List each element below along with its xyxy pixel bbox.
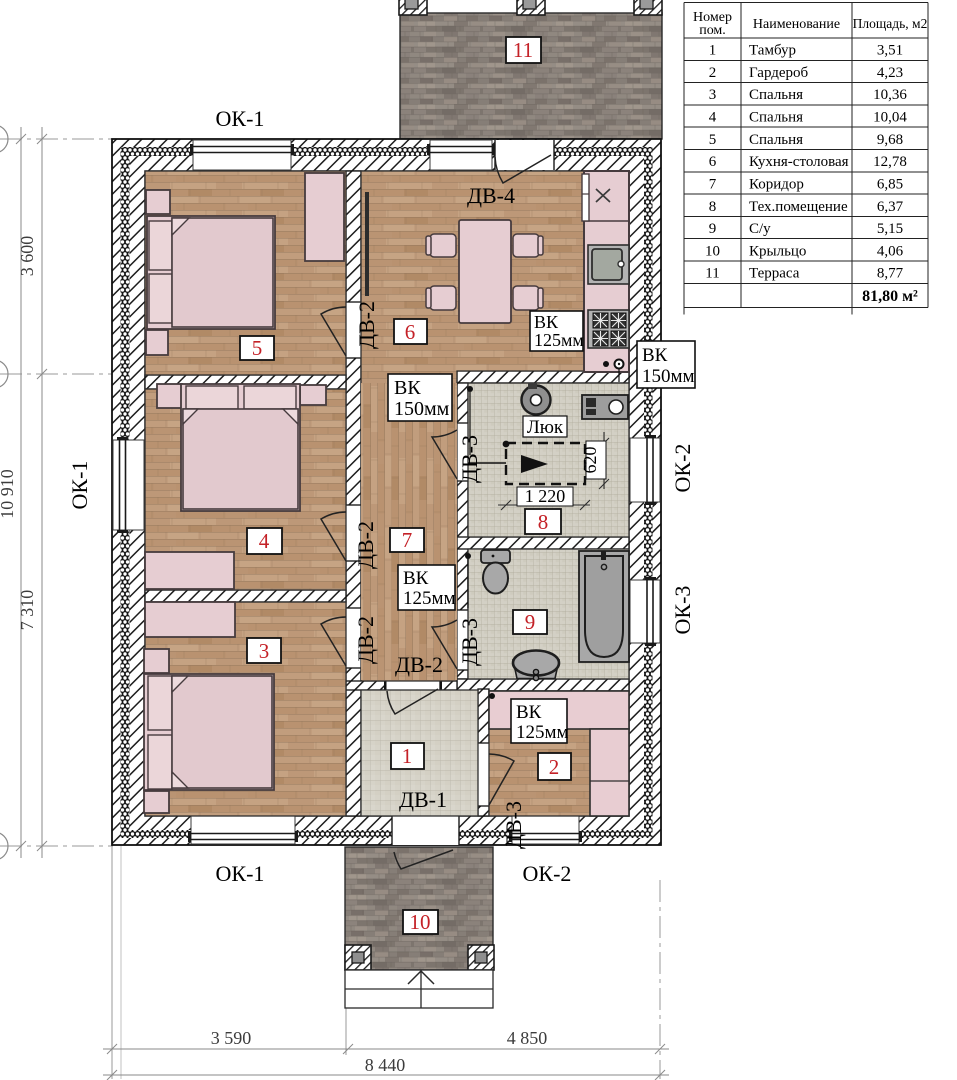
svg-text:ВК: ВК (534, 312, 559, 332)
svg-text:ДВ-2: ДВ-2 (353, 521, 378, 569)
svg-text:ДВ-3: ДВ-3 (501, 801, 526, 849)
svg-text:Спальня: Спальня (749, 110, 803, 126)
svg-text:ДВ-2: ДВ-2 (353, 616, 378, 664)
svg-text:12,78: 12,78 (873, 154, 907, 170)
svg-text:3: 3 (709, 87, 717, 103)
svg-text:4 850: 4 850 (507, 1028, 548, 1048)
svg-text:3 600: 3 600 (17, 236, 37, 277)
svg-text:7: 7 (402, 528, 413, 552)
svg-text:11: 11 (513, 38, 533, 62)
svg-text:ДВ-3: ДВ-3 (457, 618, 482, 666)
svg-text:Спальня: Спальня (749, 87, 803, 103)
svg-text:9: 9 (525, 610, 536, 634)
svg-text:6: 6 (405, 320, 416, 344)
svg-text:Тех.помещение: Тех.помещение (749, 199, 848, 215)
svg-text:ДВ-2: ДВ-2 (354, 301, 379, 349)
svg-text:Тамбур: Тамбур (749, 43, 796, 59)
svg-text:ВК: ВК (642, 345, 668, 366)
svg-text:5,15: 5,15 (877, 221, 903, 237)
svg-text:8: 8 (538, 510, 549, 534)
svg-text:С/у: С/у (749, 221, 771, 237)
svg-text:Люк: Люк (527, 417, 564, 438)
svg-text:8 440: 8 440 (365, 1055, 406, 1075)
svg-text:Коридор: Коридор (749, 177, 804, 193)
svg-text:ВК: ВК (516, 702, 542, 723)
svg-text:8,77: 8,77 (877, 266, 904, 282)
svg-text:1: 1 (709, 43, 717, 59)
svg-text:пом.: пом. (699, 23, 726, 38)
svg-text:4: 4 (259, 529, 270, 553)
svg-text:ДВ-2: ДВ-2 (395, 652, 443, 677)
svg-text:10,04: 10,04 (873, 110, 907, 126)
svg-text:Терраса: Терраса (749, 266, 800, 282)
svg-text:Крыльцо: Крыльцо (749, 243, 806, 259)
svg-text:ДВ-3: ДВ-3 (457, 435, 482, 483)
svg-text:5: 5 (252, 336, 263, 360)
svg-text:ДВ-4: ДВ-4 (467, 183, 515, 208)
svg-text:1: 1 (402, 744, 413, 768)
svg-text:150мм: 150мм (394, 398, 450, 420)
svg-text:125мм: 125мм (403, 588, 456, 609)
svg-text:7: 7 (709, 177, 717, 193)
svg-text:3: 3 (259, 639, 270, 663)
svg-text:81,80 м²: 81,80 м² (862, 288, 918, 305)
svg-text:ОК-2: ОК-2 (670, 444, 695, 493)
svg-text:ВК: ВК (394, 377, 421, 399)
svg-text:ОК-2: ОК-2 (523, 861, 572, 886)
svg-text:3,51: 3,51 (877, 43, 903, 59)
svg-text:150мм: 150мм (642, 366, 695, 387)
svg-text:4,23: 4,23 (877, 65, 903, 81)
svg-text:Гардероб: Гардероб (749, 65, 809, 81)
svg-text:125мм: 125мм (516, 722, 569, 743)
svg-text:ОК-1: ОК-1 (67, 461, 92, 510)
svg-text:6: 6 (709, 154, 717, 170)
svg-text:10,36: 10,36 (873, 87, 907, 103)
svg-text:ДВ-1: ДВ-1 (399, 787, 447, 812)
svg-text:ОК-1: ОК-1 (216, 861, 265, 886)
svg-text:10 910: 10 910 (0, 469, 17, 519)
svg-text:11: 11 (705, 266, 719, 282)
svg-text:ОК-3: ОК-3 (670, 586, 695, 635)
svg-text:Площадь, м2: Площадь, м2 (853, 16, 928, 31)
svg-text:6,37: 6,37 (877, 199, 904, 215)
svg-text:4,06: 4,06 (877, 243, 904, 259)
svg-text:ОК-1: ОК-1 (216, 106, 265, 131)
svg-text:8: 8 (709, 199, 717, 215)
svg-text:10: 10 (410, 910, 431, 934)
svg-text:Спальня: Спальня (749, 132, 803, 148)
svg-text:125мм: 125мм (534, 330, 584, 350)
svg-text:10: 10 (705, 243, 720, 259)
svg-text:1 220: 1 220 (525, 486, 566, 506)
svg-text:2: 2 (549, 755, 560, 779)
svg-text:Кухня-столовая: Кухня-столовая (749, 154, 849, 170)
svg-text:7 310: 7 310 (17, 590, 37, 631)
svg-text:620: 620 (580, 447, 600, 474)
svg-text:ВК: ВК (403, 568, 429, 589)
svg-text:3 590: 3 590 (211, 1028, 252, 1048)
svg-text:6,85: 6,85 (877, 177, 903, 193)
svg-text:5: 5 (709, 132, 717, 148)
svg-text:9: 9 (709, 221, 717, 237)
svg-text:Наименование: Наименование (753, 17, 840, 32)
svg-text:9,68: 9,68 (877, 132, 903, 148)
svg-text:4: 4 (709, 110, 717, 126)
svg-text:2: 2 (709, 65, 717, 81)
